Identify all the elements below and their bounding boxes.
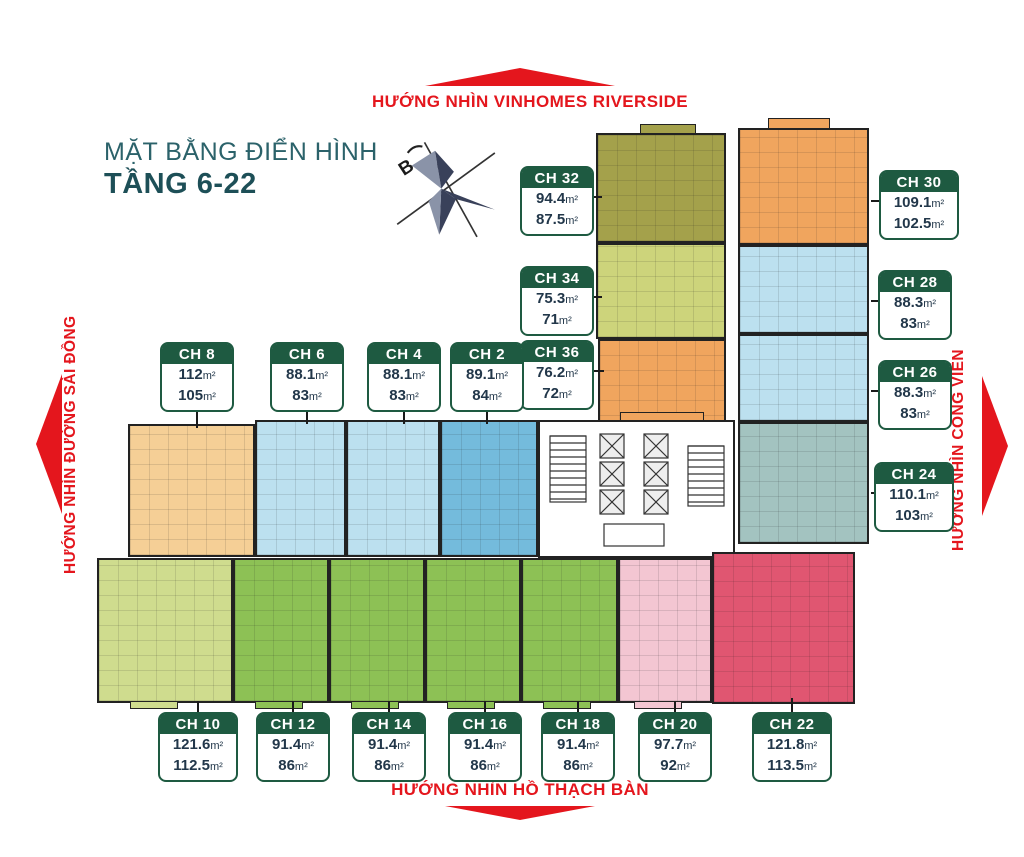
balcony-bump	[255, 701, 303, 709]
unit-block-ch-24	[738, 422, 869, 544]
unit-name: CH 14	[354, 714, 424, 734]
unit-name: CH 22	[754, 714, 830, 734]
balcony-bump	[351, 701, 399, 709]
unit-label-ch-14: CH 14 91.4m² 86m²	[352, 712, 426, 782]
unit-block-ch-4	[346, 420, 440, 557]
unit-floorplan-texture	[331, 560, 423, 701]
floor-plan-page: { "page": { "title_line1": "MẶT BẰNG ĐIỂ…	[0, 0, 1024, 857]
unit-label-ch-16: CH 16 91.4m² 86m²	[448, 712, 522, 782]
unit-area-gross: 91.4m²	[354, 735, 424, 756]
unit-floorplan-texture	[714, 554, 853, 702]
unit-floorplan-texture	[99, 560, 231, 701]
unit-area-net: 83m²	[369, 386, 439, 407]
unit-floorplan-texture	[235, 560, 327, 701]
unit-area-net: 83m²	[880, 314, 950, 335]
unit-area-gross: 76.2m²	[522, 363, 592, 384]
unit-label-ch-2: CH 2 89.1m² 84m²	[450, 342, 524, 412]
unit-area-gross: 94.4m²	[522, 189, 592, 210]
unit-label-ch-18: CH 18 91.4m² 86m²	[541, 712, 615, 782]
unit-label-ch-24: CH 24 110.1m² 103m²	[874, 462, 954, 532]
unit-area-net: 83m²	[272, 386, 342, 407]
unit-area-net: 105m²	[162, 386, 232, 407]
unit-block-ch-26	[738, 334, 869, 422]
unit-area-net: 86m²	[354, 756, 424, 777]
unit-block-ch-14	[329, 558, 425, 703]
unit-name: CH 30	[881, 172, 957, 192]
unit-area-net: 103m²	[876, 506, 952, 527]
balcony-bump	[620, 412, 704, 421]
unit-name: CH 26	[880, 362, 950, 382]
unit-area-net: 86m²	[450, 756, 520, 777]
unit-area-net: 83m²	[880, 404, 950, 425]
unit-block-ch-30	[738, 128, 869, 245]
unit-block-ch-10	[97, 558, 233, 703]
unit-floorplan-texture	[130, 426, 253, 555]
unit-name: CH 10	[160, 714, 236, 734]
unit-area-gross: 88.3m²	[880, 293, 950, 314]
unit-area-gross: 112m²	[162, 365, 232, 386]
unit-floorplan-texture	[598, 135, 724, 241]
unit-area-gross: 88.3m²	[880, 383, 950, 404]
balcony-bump	[543, 701, 591, 709]
unit-area-gross: 88.1m²	[369, 365, 439, 386]
floor-plan: CH 32 94.4m² 87.5m² CH 30 109.1m² 102.5m…	[0, 0, 1024, 857]
building-core-elevators	[538, 420, 735, 558]
unit-name: CH 4	[369, 344, 439, 364]
unit-area-gross: 91.4m²	[543, 735, 613, 756]
unit-block-ch-28	[738, 245, 869, 334]
unit-label-ch-30: CH 30 109.1m² 102.5m²	[879, 170, 959, 240]
unit-area-gross: 75.3m²	[522, 289, 592, 310]
unit-floorplan-texture	[348, 422, 438, 555]
unit-block-ch-22	[712, 552, 855, 704]
unit-block-ch-34	[596, 243, 726, 339]
unit-area-gross: 121.8m²	[754, 735, 830, 756]
unit-block-ch-18	[521, 558, 618, 703]
unit-floorplan-texture	[740, 247, 867, 332]
unit-area-net: 86m²	[258, 756, 328, 777]
unit-label-ch-8: CH 8 112m² 105m²	[160, 342, 234, 412]
unit-floorplan-texture	[442, 422, 536, 555]
unit-block-ch-20	[618, 558, 712, 703]
unit-area-net: 71m²	[522, 310, 592, 331]
unit-floorplan-texture	[257, 422, 344, 555]
unit-name: CH 36	[522, 342, 592, 362]
unit-area-gross: 97.7m²	[640, 735, 710, 756]
unit-block-ch-16	[425, 558, 521, 703]
unit-label-ch-10: CH 10 121.6m² 112.5m²	[158, 712, 238, 782]
unit-name: CH 32	[522, 168, 592, 188]
unit-area-net: 102.5m²	[881, 214, 957, 235]
unit-area-gross: 110.1m²	[876, 485, 952, 506]
unit-block-ch-12	[233, 558, 329, 703]
unit-block-ch-2	[440, 420, 538, 557]
unit-name: CH 16	[450, 714, 520, 734]
unit-area-gross: 88.1m²	[272, 365, 342, 386]
unit-floorplan-texture	[740, 336, 867, 420]
unit-area-net: 84m²	[452, 386, 522, 407]
balcony-bump	[447, 701, 495, 709]
unit-label-ch-26: CH 26 88.3m² 83m²	[878, 360, 952, 430]
unit-label-ch-20: CH 20 97.7m² 92m²	[638, 712, 712, 782]
unit-floorplan-texture	[523, 560, 616, 701]
unit-name: CH 2	[452, 344, 522, 364]
unit-floorplan-texture	[740, 424, 867, 542]
unit-block-ch-6	[255, 420, 346, 557]
unit-name: CH 18	[543, 714, 613, 734]
balcony-bump	[768, 118, 830, 129]
unit-area-gross: 121.6m²	[160, 735, 236, 756]
unit-name: CH 28	[880, 272, 950, 292]
unit-label-ch-32: CH 32 94.4m² 87.5m²	[520, 166, 594, 236]
unit-area-gross: 91.4m²	[258, 735, 328, 756]
unit-name: CH 12	[258, 714, 328, 734]
unit-block-ch-8	[128, 424, 255, 557]
unit-area-gross: 89.1m²	[452, 365, 522, 386]
balcony-bump	[640, 124, 696, 134]
unit-area-net: 112.5m²	[160, 756, 236, 777]
unit-label-ch-34: CH 34 75.3m² 71m²	[520, 266, 594, 336]
unit-name: CH 24	[876, 464, 952, 484]
unit-label-ch-28: CH 28 88.3m² 83m²	[878, 270, 952, 340]
unit-area-gross: 91.4m²	[450, 735, 520, 756]
unit-area-net: 72m²	[522, 384, 592, 405]
unit-area-gross: 109.1m²	[881, 193, 957, 214]
unit-floorplan-texture	[620, 560, 710, 701]
unit-label-ch-4: CH 4 88.1m² 83m²	[367, 342, 441, 412]
unit-label-ch-22: CH 22 121.8m² 113.5m²	[752, 712, 832, 782]
core-detail	[540, 422, 733, 556]
unit-block-ch-32	[596, 133, 726, 243]
unit-name: CH 6	[272, 344, 342, 364]
balcony-bump	[130, 701, 178, 709]
unit-name: CH 34	[522, 268, 592, 288]
unit-floorplan-texture	[427, 560, 519, 701]
unit-area-net: 92m²	[640, 756, 710, 777]
unit-label-ch-36: CH 36 76.2m² 72m²	[520, 340, 594, 410]
unit-floorplan-texture	[740, 130, 867, 243]
unit-floorplan-texture	[598, 245, 724, 337]
unit-label-ch-12: CH 12 91.4m² 86m²	[256, 712, 330, 782]
unit-name: CH 8	[162, 344, 232, 364]
unit-area-net: 113.5m²	[754, 756, 830, 777]
unit-name: CH 20	[640, 714, 710, 734]
unit-area-net: 86m²	[543, 756, 613, 777]
unit-area-net: 87.5m²	[522, 210, 592, 231]
unit-label-ch-6: CH 6 88.1m² 83m²	[270, 342, 344, 412]
